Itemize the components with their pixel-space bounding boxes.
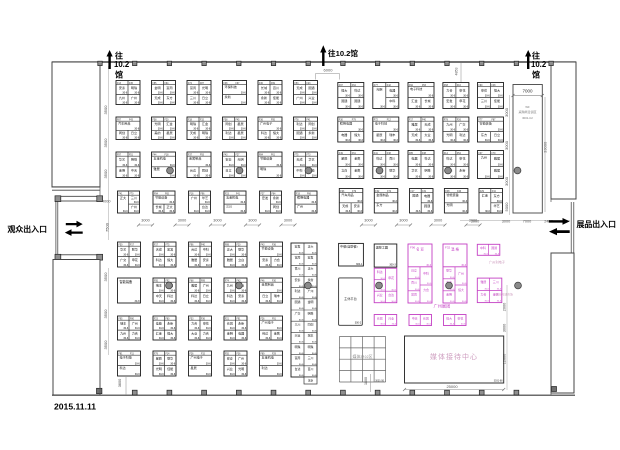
svg-text:30-6: 30-6 bbox=[170, 337, 175, 340]
svg-text:30-6: 30-6 bbox=[415, 301, 420, 303]
svg-text:3500: 3500 bbox=[103, 169, 108, 179]
svg-text:F34: F34 bbox=[492, 191, 497, 193]
svg-text:广州电子: 广州电子 bbox=[191, 354, 203, 359]
svg-text:电器: 电器 bbox=[238, 330, 244, 335]
svg-text:中餐(自助餐): 中餐(自助餐) bbox=[340, 244, 358, 249]
svg-text:30-6: 30-6 bbox=[277, 337, 282, 340]
svg-text:30-6: 30-6 bbox=[463, 95, 468, 98]
svg-text:F97: F97 bbox=[339, 85, 344, 87]
svg-text:3000: 3000 bbox=[504, 176, 509, 186]
svg-text:天成: 天成 bbox=[154, 95, 160, 100]
svg-text:30-6: 30-6 bbox=[158, 102, 163, 105]
svg-text:30-6: 30-6 bbox=[264, 102, 269, 105]
svg-text:温控工器: 温控工器 bbox=[376, 244, 388, 249]
svg-text:立白: 立白 bbox=[238, 257, 244, 262]
svg-text:安泰: 安泰 bbox=[354, 203, 360, 208]
svg-text:华艺: 华艺 bbox=[119, 157, 125, 162]
svg-text:2000: 2000 bbox=[503, 303, 507, 311]
svg-text:30-6: 30-6 bbox=[345, 210, 350, 213]
svg-text:3500: 3500 bbox=[103, 105, 108, 115]
svg-text:中科: 中科 bbox=[423, 271, 429, 276]
svg-text:30-6: 30-6 bbox=[415, 164, 420, 167]
svg-text:F12: F12 bbox=[387, 119, 392, 121]
svg-text:同创: 同创 bbox=[308, 121, 314, 126]
svg-text:30-6: 30-6 bbox=[241, 127, 246, 130]
svg-text:30-6: 30-6 bbox=[241, 164, 246, 167]
svg-text:日立: 日立 bbox=[262, 293, 268, 298]
svg-text:宏发: 宏发 bbox=[308, 255, 314, 260]
svg-text:30-6: 30-6 bbox=[276, 201, 281, 204]
svg-text:30-6: 30-6 bbox=[428, 164, 433, 167]
svg-text:圆通: 圆通 bbox=[295, 299, 301, 304]
svg-text:30-6: 30-6 bbox=[205, 210, 210, 213]
svg-text:3000: 3000 bbox=[364, 219, 372, 223]
svg-text:利达: 利达 bbox=[295, 288, 301, 293]
svg-text:30-6: 30-6 bbox=[205, 164, 210, 167]
svg-text:3001-C2: 3001-C2 bbox=[522, 116, 533, 120]
svg-text:30-6: 30-6 bbox=[462, 210, 467, 213]
svg-text:华艺: 华艺 bbox=[202, 195, 208, 200]
svg-text:台达: 台达 bbox=[190, 167, 196, 172]
svg-text:30-6: 30-6 bbox=[498, 176, 503, 179]
svg-text:力合: 力合 bbox=[446, 87, 452, 92]
svg-text:30-6: 30-6 bbox=[265, 264, 270, 267]
svg-text:光明: 光明 bbox=[154, 121, 160, 126]
svg-text:永新: 永新 bbox=[261, 95, 267, 100]
svg-text:温 格: 温 格 bbox=[451, 247, 459, 252]
svg-text:宏发: 宏发 bbox=[446, 98, 452, 103]
svg-text:30-6: 30-6 bbox=[169, 210, 174, 213]
svg-text:圆通: 圆通 bbox=[308, 85, 314, 90]
svg-text:30-6: 30-6 bbox=[170, 264, 175, 267]
svg-text:电子科技: 电子科技 bbox=[375, 120, 387, 125]
svg-text:名 亚: 名 亚 bbox=[416, 247, 424, 252]
svg-text:金明: 金明 bbox=[154, 85, 160, 90]
svg-text:采购商洽谈区: 采购商洽谈区 bbox=[518, 109, 536, 114]
svg-text:照明电器: 照明电器 bbox=[340, 120, 352, 125]
svg-text:明珠: 明珠 bbox=[131, 157, 138, 162]
svg-text:30-6: 30-6 bbox=[159, 300, 164, 303]
svg-text:30-6: 30-6 bbox=[345, 106, 350, 109]
svg-text:永新: 永新 bbox=[273, 195, 279, 200]
svg-text:30-6: 30-6 bbox=[206, 327, 211, 330]
svg-text:长城: 长城 bbox=[227, 320, 233, 325]
svg-text:恒大: 恒大 bbox=[494, 87, 500, 92]
svg-text:东方: 东方 bbox=[494, 193, 500, 198]
svg-text:立白: 立白 bbox=[341, 168, 347, 173]
svg-text:30-6: 30-6 bbox=[495, 253, 500, 255]
svg-text:30-6: 30-6 bbox=[312, 275, 317, 277]
svg-text:7000: 7000 bbox=[522, 89, 533, 94]
svg-text:30-6: 30-6 bbox=[206, 254, 211, 257]
svg-text:30-6: 30-6 bbox=[205, 92, 210, 95]
svg-text:申花: 申花 bbox=[203, 320, 209, 325]
svg-text:30-6: 30-6 bbox=[229, 175, 234, 178]
svg-text:日立: 日立 bbox=[203, 293, 209, 298]
svg-text:2015.11.11: 2015.11.11 bbox=[54, 402, 96, 412]
svg-text:30-6: 30-6 bbox=[241, 337, 246, 340]
svg-text:30-6: 30-6 bbox=[498, 95, 503, 98]
svg-text:3000: 3000 bbox=[471, 220, 479, 224]
svg-text:广州: 广州 bbox=[131, 204, 137, 209]
svg-text:正大: 正大 bbox=[120, 195, 126, 200]
svg-text:圆通: 圆通 bbox=[354, 98, 360, 103]
svg-text:安泰: 安泰 bbox=[227, 356, 233, 361]
svg-text:华艺: 华艺 bbox=[411, 168, 417, 173]
svg-text:30-6: 30-6 bbox=[264, 137, 269, 140]
svg-text:中科: 中科 bbox=[389, 98, 395, 103]
svg-text:30-6: 30-6 bbox=[391, 301, 396, 303]
svg-text:30-6: 30-6 bbox=[122, 102, 127, 105]
svg-text:兴业: 兴业 bbox=[227, 366, 233, 371]
svg-text:天成: 天成 bbox=[342, 203, 348, 208]
svg-text:30-6: 30-6 bbox=[170, 363, 175, 366]
svg-text:30-6: 30-6 bbox=[358, 176, 363, 179]
svg-text:30-6: 30-6 bbox=[159, 254, 164, 257]
svg-text:30-6: 30-6 bbox=[299, 263, 304, 265]
svg-text:台达: 台达 bbox=[295, 366, 301, 371]
svg-text:30-6: 30-6 bbox=[276, 164, 281, 167]
svg-text:九州: 九州 bbox=[120, 330, 126, 335]
svg-text:30-6: 30-6 bbox=[194, 300, 199, 303]
svg-text:30-6: 30-6 bbox=[158, 210, 163, 213]
svg-text:30-6: 30-6 bbox=[205, 175, 210, 178]
svg-text:30-6: 30-6 bbox=[358, 139, 363, 142]
svg-text:广交: 广交 bbox=[459, 122, 465, 127]
svg-text:恒大: 恒大 bbox=[167, 257, 173, 262]
svg-text:30-6: 30-6 bbox=[170, 164, 175, 167]
svg-text:30-6: 30-6 bbox=[241, 327, 246, 330]
svg-text:300-1: 300-1 bbox=[356, 263, 363, 266]
svg-text:30-6: 30-6 bbox=[277, 300, 282, 303]
svg-text:富周: 富周 bbox=[166, 85, 172, 90]
svg-text:光明: 光明 bbox=[446, 132, 452, 137]
svg-text:30-6: 30-6 bbox=[134, 175, 139, 178]
svg-text:圆通: 圆通 bbox=[424, 203, 430, 208]
svg-text:申花: 申花 bbox=[481, 87, 487, 92]
svg-text:华艺: 华艺 bbox=[494, 203, 500, 208]
svg-text:F32: F32 bbox=[445, 246, 451, 250]
svg-text:百川: 百川 bbox=[389, 157, 395, 161]
svg-text:30-6: 30-6 bbox=[241, 363, 246, 366]
svg-text:长城: 长城 bbox=[261, 85, 267, 90]
svg-text:30-6: 30-6 bbox=[265, 210, 270, 213]
svg-text:星辰: 星辰 bbox=[376, 132, 382, 137]
svg-text:300-3: 300-3 bbox=[389, 263, 396, 266]
svg-text:30-6: 30-6 bbox=[194, 254, 199, 257]
svg-text:电子科技: 电子科技 bbox=[120, 354, 132, 359]
svg-text:光明: 光明 bbox=[156, 366, 162, 371]
svg-text:F64: F64 bbox=[352, 85, 357, 87]
svg-text:3500: 3500 bbox=[103, 340, 108, 350]
svg-text:10.2: 10.2 bbox=[114, 60, 130, 69]
svg-text:30-6: 30-6 bbox=[380, 176, 385, 179]
svg-text:广州: 广州 bbox=[132, 320, 138, 325]
svg-text:联华: 联华 bbox=[132, 247, 138, 252]
svg-text:30-6: 30-6 bbox=[427, 200, 432, 203]
svg-text:30-6: 30-6 bbox=[392, 200, 397, 203]
svg-text:美的: 美的 bbox=[154, 130, 160, 135]
svg-text:30-6: 30-6 bbox=[427, 283, 432, 285]
svg-text:3000: 3000 bbox=[399, 219, 407, 223]
svg-text:同创: 同创 bbox=[308, 322, 314, 327]
svg-text:30-6: 30-6 bbox=[358, 129, 363, 132]
svg-text:安泰: 安泰 bbox=[262, 257, 268, 262]
svg-text:天成: 天成 bbox=[296, 85, 302, 90]
svg-text:恒大: 恒大 bbox=[341, 87, 347, 92]
svg-text:30-6: 30-6 bbox=[229, 137, 234, 140]
svg-text:30-6: 30-6 bbox=[159, 290, 164, 293]
svg-text:30-6: 30-6 bbox=[170, 290, 175, 293]
svg-text:30-6: 30-6 bbox=[299, 297, 304, 299]
svg-text:30-6: 30-6 bbox=[312, 308, 317, 310]
svg-text:3031-56: 3031-56 bbox=[375, 379, 384, 382]
svg-text:30-6: 30-6 bbox=[134, 164, 139, 167]
svg-text:30-6: 30-6 bbox=[135, 327, 140, 330]
svg-text:汇金: 汇金 bbox=[202, 121, 208, 126]
svg-text:30-6: 30-6 bbox=[241, 373, 246, 376]
svg-text:30-6: 30-6 bbox=[206, 373, 211, 376]
svg-text:30-6: 30-6 bbox=[193, 137, 198, 140]
svg-text:30-6: 30-6 bbox=[312, 92, 317, 95]
svg-text:30-6: 30-6 bbox=[205, 137, 210, 140]
svg-text:圆通: 圆通 bbox=[491, 245, 497, 250]
svg-text:30-6: 30-6 bbox=[277, 363, 282, 366]
svg-text:30-6: 30-6 bbox=[193, 102, 198, 105]
svg-text:30-6: 30-6 bbox=[206, 264, 211, 267]
svg-text:光明: 光明 bbox=[237, 157, 243, 162]
svg-text:30-6: 30-6 bbox=[170, 300, 175, 303]
svg-text:30-6: 30-6 bbox=[170, 102, 175, 105]
svg-text:兴业: 兴业 bbox=[308, 95, 314, 100]
svg-text:瑞丰: 瑞丰 bbox=[156, 283, 162, 288]
svg-text:30-6: 30-6 bbox=[450, 301, 455, 303]
svg-text:三川: 三川 bbox=[308, 356, 314, 360]
svg-text:星辰: 星辰 bbox=[191, 365, 197, 370]
svg-text:30-6: 30-6 bbox=[277, 264, 282, 267]
svg-text:宏发: 宏发 bbox=[167, 247, 173, 252]
svg-text:智能装备: 智能装备 bbox=[120, 279, 134, 284]
svg-text:富周: 富周 bbox=[295, 355, 301, 360]
svg-text:30-6: 30-6 bbox=[230, 290, 235, 293]
svg-text:WF: WF bbox=[525, 105, 530, 109]
svg-text:30-6: 30-6 bbox=[312, 319, 317, 321]
svg-text:百川: 百川 bbox=[411, 281, 417, 285]
svg-text:申花: 申花 bbox=[459, 156, 465, 161]
svg-text:30-6: 30-6 bbox=[463, 129, 468, 132]
svg-text:30-6: 30-6 bbox=[277, 290, 282, 293]
svg-text:30-6: 30-6 bbox=[123, 327, 128, 330]
svg-text:30-6: 30-6 bbox=[380, 106, 385, 109]
svg-text:30-6: 30-6 bbox=[206, 363, 211, 366]
svg-text:30-6: 30-6 bbox=[206, 290, 211, 293]
svg-text:雅居: 雅居 bbox=[227, 257, 233, 262]
svg-text:电器: 电器 bbox=[424, 193, 430, 198]
svg-text:30-6: 30-6 bbox=[485, 176, 490, 179]
svg-text:30-6: 30-6 bbox=[241, 102, 246, 105]
svg-text:金鹰: 金鹰 bbox=[354, 168, 360, 173]
svg-text:同创: 同创 bbox=[273, 204, 279, 209]
svg-text:30-6: 30-6 bbox=[497, 288, 502, 290]
svg-text:30-6: 30-6 bbox=[299, 252, 304, 254]
svg-text:30-6: 30-6 bbox=[345, 95, 350, 98]
svg-text:30-6: 30-6 bbox=[428, 176, 433, 179]
svg-text:30-6: 30-6 bbox=[426, 324, 431, 326]
svg-text:星辰: 星辰 bbox=[237, 130, 243, 135]
svg-text:30-6: 30-6 bbox=[241, 254, 246, 257]
svg-text:展品出入口: 展品出入口 bbox=[576, 219, 617, 229]
svg-text:3000: 3000 bbox=[502, 220, 510, 224]
svg-text:30-6: 30-6 bbox=[299, 308, 304, 310]
svg-text:30-6: 30-6 bbox=[123, 337, 128, 340]
svg-text:九州: 九州 bbox=[481, 155, 487, 160]
svg-text:30-6: 30-6 bbox=[276, 175, 281, 178]
svg-text:明珠: 明珠 bbox=[308, 310, 314, 315]
svg-text:30-6: 30-6 bbox=[415, 289, 420, 291]
svg-text:三川: 三川 bbox=[493, 280, 499, 284]
svg-text:科达: 科达 bbox=[167, 293, 173, 298]
svg-text:光明: 光明 bbox=[376, 87, 382, 92]
svg-text:30-6: 30-6 bbox=[497, 210, 502, 213]
svg-text:30-6: 30-6 bbox=[122, 164, 127, 167]
svg-text:30-6: 30-6 bbox=[485, 288, 490, 290]
svg-text:广州: 广州 bbox=[296, 95, 302, 100]
svg-text:30-6: 30-6 bbox=[240, 201, 245, 204]
svg-text:30-6: 30-6 bbox=[497, 200, 502, 203]
svg-text:申花: 申花 bbox=[459, 98, 465, 103]
svg-text:观众出入口: 观众出入口 bbox=[8, 224, 48, 234]
svg-text:30-6: 30-6 bbox=[450, 176, 455, 179]
svg-text:华艺: 华艺 bbox=[120, 247, 126, 252]
svg-text:3500: 3500 bbox=[103, 272, 108, 282]
svg-text:30-6: 30-6 bbox=[415, 324, 420, 326]
svg-text:30-6: 30-6 bbox=[498, 129, 503, 132]
svg-text:30-6: 30-6 bbox=[450, 277, 455, 279]
svg-text:明珠: 明珠 bbox=[295, 344, 301, 349]
svg-text:汽车用品: 汽车用品 bbox=[341, 192, 353, 197]
svg-text:天成: 天成 bbox=[424, 122, 430, 127]
svg-text:30-6: 30-6 bbox=[312, 297, 317, 299]
svg-text:利达: 利达 bbox=[225, 130, 231, 135]
svg-text:4853: 4853 bbox=[455, 68, 459, 76]
svg-text:30-6: 30-6 bbox=[276, 102, 281, 105]
svg-text:3000: 3000 bbox=[178, 219, 186, 223]
svg-text:30-6: 30-6 bbox=[415, 106, 420, 109]
svg-text:30-6: 30-6 bbox=[312, 102, 317, 105]
svg-text:科达: 科达 bbox=[261, 130, 267, 135]
svg-text:30-6: 30-6 bbox=[194, 337, 199, 340]
svg-text:恒大: 恒大 bbox=[458, 287, 464, 292]
svg-text:节能设备: 节能设备 bbox=[262, 245, 274, 250]
svg-text:30-6: 30-6 bbox=[485, 106, 490, 109]
svg-text:中天: 中天 bbox=[131, 167, 137, 172]
svg-text:30-6: 30-6 bbox=[462, 283, 467, 285]
svg-text:30-6: 30-6 bbox=[230, 373, 235, 376]
svg-text:广州利电子: 广州利电子 bbox=[489, 260, 506, 265]
svg-text:永新: 永新 bbox=[308, 130, 314, 135]
svg-text:金属制品: 金属制品 bbox=[189, 155, 201, 160]
svg-text:10.2: 10.2 bbox=[531, 60, 547, 69]
svg-text:F42: F42 bbox=[387, 85, 392, 87]
svg-text:30-6: 30-6 bbox=[230, 300, 235, 303]
svg-text:30-6: 30-6 bbox=[300, 102, 305, 105]
svg-text:30-6: 30-6 bbox=[485, 139, 490, 142]
svg-text:30-6: 30-6 bbox=[393, 176, 398, 179]
svg-text:30-6: 30-6 bbox=[345, 164, 350, 167]
svg-text:金属制品: 金属制品 bbox=[262, 281, 274, 286]
svg-text:雅居: 雅居 bbox=[411, 122, 417, 127]
svg-text:佳能: 佳能 bbox=[494, 98, 500, 103]
svg-text:东方: 东方 bbox=[166, 95, 172, 100]
svg-text:广州: 广州 bbox=[458, 271, 464, 276]
svg-text:馆: 馆 bbox=[115, 70, 123, 80]
svg-text:永新: 永新 bbox=[225, 94, 231, 99]
svg-text:金明: 金明 bbox=[446, 292, 452, 297]
svg-text:明珠: 明珠 bbox=[308, 344, 314, 349]
svg-text:30-6: 30-6 bbox=[170, 373, 175, 376]
svg-text:瑞丰: 瑞丰 bbox=[308, 333, 314, 338]
svg-text:主海方通市场: 主海方通市场 bbox=[496, 293, 513, 297]
svg-text:力合: 力合 bbox=[423, 287, 429, 292]
svg-text:30-6: 30-6 bbox=[230, 337, 235, 340]
svg-text:金明: 金明 bbox=[308, 299, 314, 304]
svg-text:电子科技: 电子科技 bbox=[410, 86, 422, 91]
svg-text:30-6: 30-6 bbox=[428, 95, 433, 98]
svg-text:30-6: 30-6 bbox=[463, 176, 468, 179]
svg-text:F77: F77 bbox=[374, 85, 379, 87]
svg-text:日立: 日立 bbox=[411, 268, 417, 273]
svg-text:光明: 光明 bbox=[446, 202, 452, 207]
svg-text:30-6: 30-6 bbox=[312, 127, 317, 130]
svg-text:30-6: 30-6 bbox=[485, 301, 490, 303]
svg-text:30-6: 30-6 bbox=[241, 175, 246, 178]
svg-text:30-6: 30-6 bbox=[134, 210, 139, 213]
svg-text:30-6: 30-6 bbox=[497, 301, 502, 303]
svg-text:星辰: 星辰 bbox=[237, 121, 243, 126]
svg-text:30-6: 30-6 bbox=[463, 139, 468, 142]
svg-text:30-6: 30-6 bbox=[206, 300, 211, 303]
svg-text:30-6: 30-6 bbox=[463, 164, 468, 167]
svg-text:30-6: 30-6 bbox=[484, 253, 489, 255]
svg-text:30-6: 30-6 bbox=[380, 289, 385, 291]
svg-text:30-6: 30-6 bbox=[380, 278, 385, 280]
svg-text:台达: 台达 bbox=[388, 292, 394, 297]
svg-text:30-6: 30-6 bbox=[193, 175, 198, 178]
svg-text:3500: 3500 bbox=[103, 138, 108, 148]
svg-text:广州电子: 广州电子 bbox=[262, 319, 274, 324]
svg-text:30-6: 30-6 bbox=[312, 164, 317, 167]
svg-text:30-6: 30-6 bbox=[392, 210, 397, 213]
svg-text:30-6: 30-6 bbox=[159, 363, 164, 366]
svg-text:安泰: 安泰 bbox=[295, 277, 301, 282]
svg-text:宏发: 宏发 bbox=[295, 243, 301, 248]
svg-text:30-6: 30-6 bbox=[393, 139, 398, 142]
svg-text:汽车用品: 汽车用品 bbox=[118, 120, 130, 125]
svg-text:3000: 3000 bbox=[284, 219, 292, 223]
svg-text:利达: 利达 bbox=[262, 365, 268, 370]
svg-text:科达: 科达 bbox=[446, 156, 452, 161]
svg-text:瑞丰: 瑞丰 bbox=[389, 132, 395, 137]
svg-text:30-6: 30-6 bbox=[159, 337, 164, 340]
svg-text:30-6: 30-6 bbox=[122, 137, 127, 140]
svg-text:30-6: 30-6 bbox=[391, 289, 396, 291]
svg-text:30-6: 30-6 bbox=[241, 137, 246, 140]
svg-text:30-6: 30-6 bbox=[312, 364, 317, 366]
svg-text:5000: 5000 bbox=[504, 202, 509, 212]
svg-text:30-6: 30-6 bbox=[134, 127, 139, 130]
svg-text:30-6: 30-6 bbox=[169, 201, 174, 204]
svg-text:30-6: 30-6 bbox=[427, 210, 432, 213]
